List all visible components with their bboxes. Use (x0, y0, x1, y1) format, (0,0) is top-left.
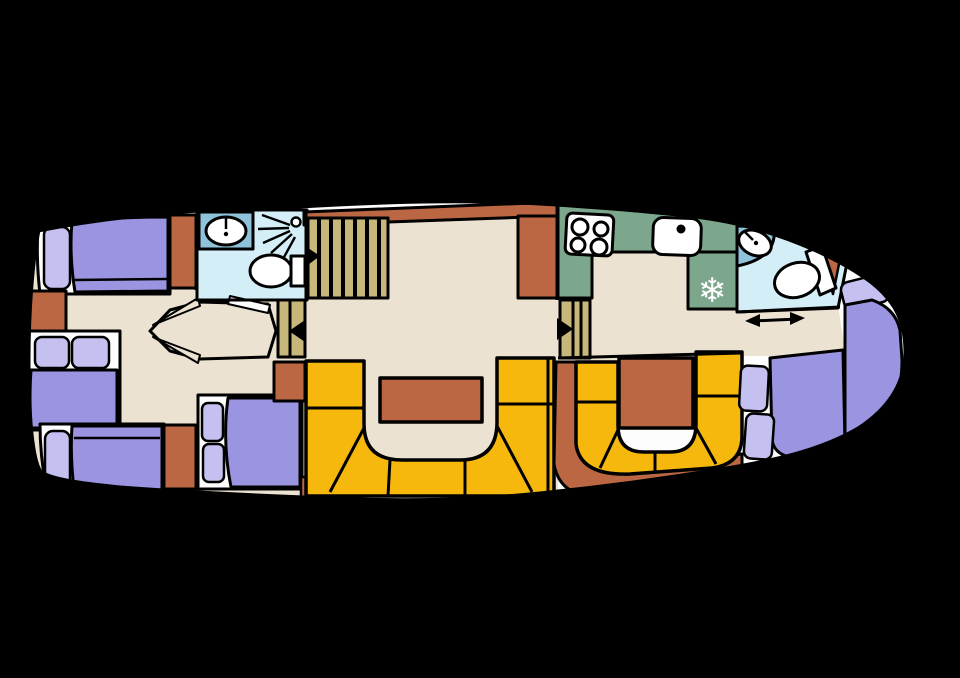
berth-top-blanket-seam (74, 279, 167, 280)
salon-cabinet (518, 216, 557, 298)
salon-table (380, 378, 482, 422)
aft-double-bed-blanket (30, 370, 117, 428)
stove-icon (565, 213, 614, 256)
aft-double-bed-pillow-1 (35, 337, 69, 368)
bow-pillow-1 (739, 365, 769, 411)
aft-cabinet-bottom (164, 425, 196, 489)
berth-bottom-blanket (71, 426, 162, 490)
bathroom-left-drain-icon (224, 232, 228, 236)
berth-top-pillow (44, 227, 70, 289)
aft-double-bed-pillow-2 (72, 337, 109, 368)
cockpit-table (619, 358, 693, 428)
snowflake-icon: ❄ (698, 271, 727, 311)
mid-bed-blanket (226, 398, 300, 487)
mid-bed-pillow-1 (202, 403, 223, 441)
mid-bed-pillow-2 (203, 444, 224, 482)
galley-sink-icon (652, 217, 701, 256)
bow-pillow-2 (743, 413, 774, 460)
aft-cabinet-top (170, 215, 196, 288)
boat-floorplan-image: ❄ (0, 0, 960, 678)
toilet-left-tank (291, 256, 305, 286)
salon-side-cabinet (274, 362, 305, 401)
toilet-left-icon (250, 255, 292, 287)
